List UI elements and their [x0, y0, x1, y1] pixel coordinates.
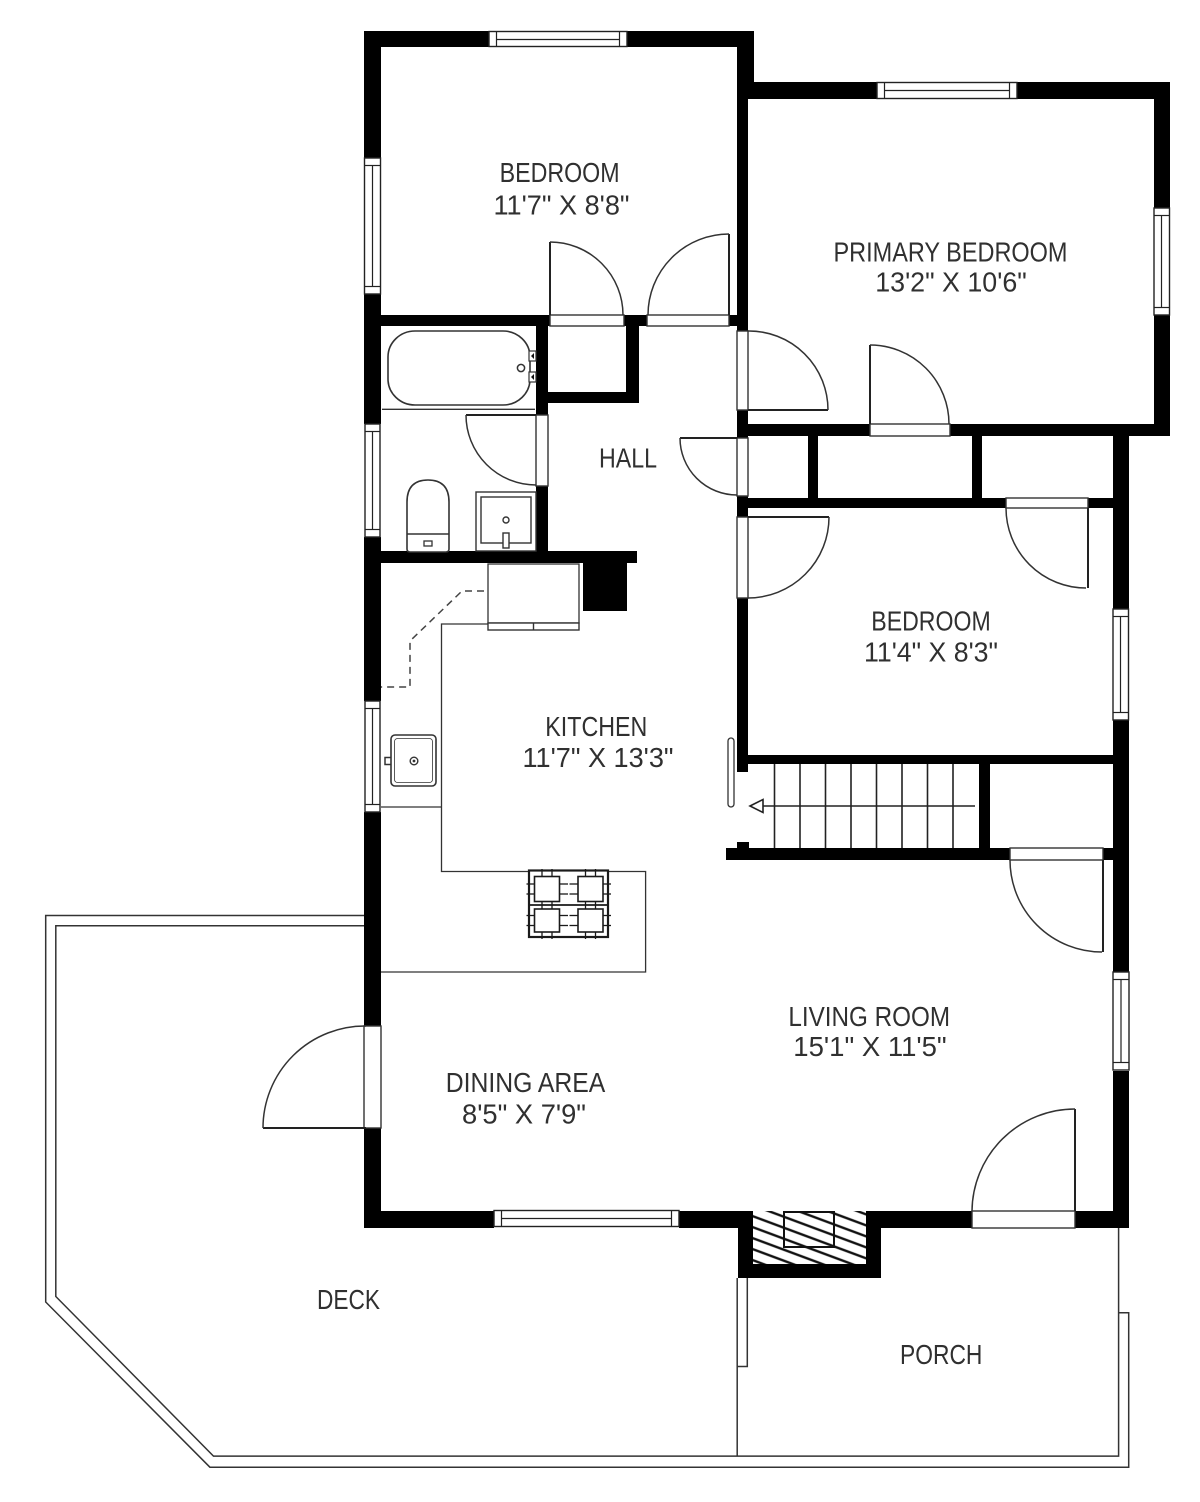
svg-text:DINING AREA: DINING AREA	[446, 1067, 606, 1098]
svg-text:DECK: DECK	[317, 1284, 381, 1315]
svg-text:11'7" X 8'8": 11'7" X 8'8"	[494, 190, 630, 221]
svg-text:HALL: HALL	[599, 443, 657, 474]
svg-text:PORCH: PORCH	[900, 1339, 982, 1370]
svg-text:BEDROOM: BEDROOM	[871, 606, 990, 637]
svg-text:BEDROOM: BEDROOM	[500, 157, 620, 188]
svg-text:PRIMARY BEDROOM: PRIMARY BEDROOM	[834, 237, 1068, 268]
svg-text:15'1" X 11'5": 15'1" X 11'5"	[793, 1031, 946, 1062]
svg-text:LIVING ROOM: LIVING ROOM	[788, 1001, 950, 1032]
svg-text:KITCHEN: KITCHEN	[545, 711, 647, 742]
svg-text:8'5" X 7'9": 8'5" X 7'9"	[462, 1099, 586, 1130]
svg-text:11'4" X 8'3": 11'4" X 8'3"	[864, 636, 998, 667]
svg-text:11'7" X 13'3": 11'7" X 13'3"	[523, 742, 674, 773]
svg-text:13'2" X 10'6": 13'2" X 10'6"	[875, 267, 1027, 298]
